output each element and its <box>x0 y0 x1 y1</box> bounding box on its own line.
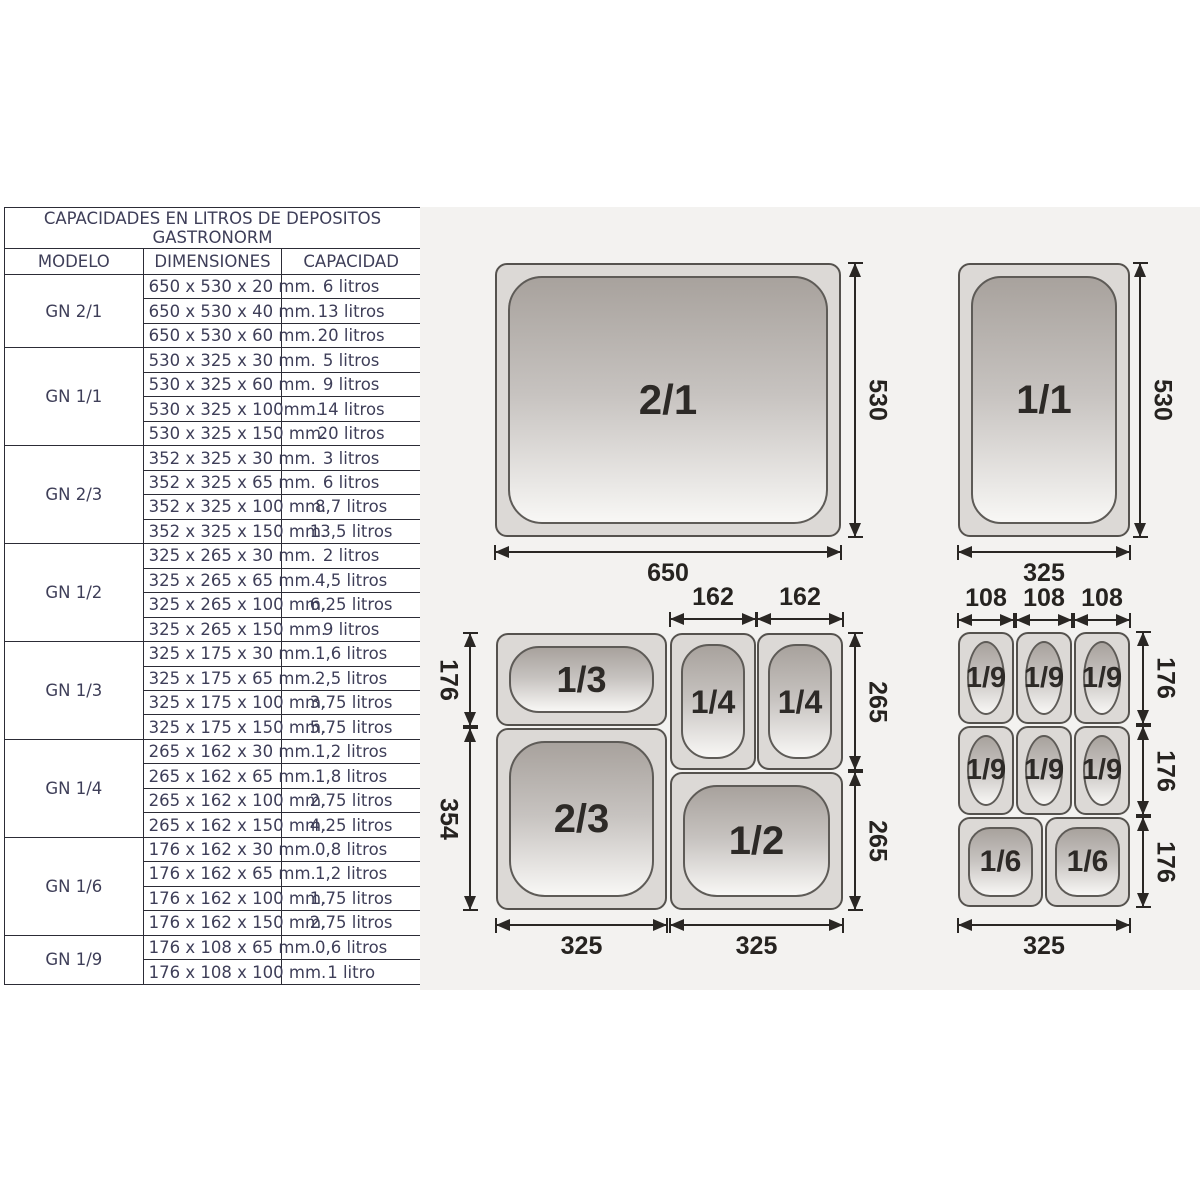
pan-label: 1/9 <box>1082 664 1122 693</box>
arrowhead-icon <box>496 919 510 931</box>
dimension-line <box>495 551 841 553</box>
pan-1-4-right: 1/4 <box>757 633 843 770</box>
pan-label: 1/6 <box>980 847 1022 877</box>
pan-1-2-well: 1/2 <box>683 785 830 897</box>
extension-tick <box>957 918 959 933</box>
pan-1-1: 1/1 <box>958 263 1130 537</box>
arrowhead-icon <box>958 546 972 558</box>
dim-label: 162 <box>692 585 734 610</box>
arrowhead-icon <box>670 919 684 931</box>
model-cell: GN 1/3 <box>5 642 144 740</box>
dim-label: 176 <box>436 659 461 701</box>
extension-tick <box>666 918 668 933</box>
extension-tick <box>756 612 758 627</box>
dim-label: 325 <box>736 934 778 959</box>
arrowhead-icon <box>849 772 861 786</box>
dimension-line <box>854 633 856 770</box>
extension-tick <box>494 545 496 560</box>
arrowhead-icon <box>757 613 771 625</box>
dimensions-cell: 352 x 325 x 65 mm. <box>143 470 282 494</box>
dimension-line <box>854 263 856 537</box>
extension-tick <box>1129 613 1131 628</box>
pan-1-9-r1c2: 1/9 <box>1016 632 1072 724</box>
pan-label: 2/1 <box>639 379 697 421</box>
model-cell: GN 2/3 <box>5 446 144 544</box>
table-row: GN 1/2325 x 265 x 30 mm.2 litros <box>5 544 421 568</box>
dimensions-cell: 650 x 530 x 40 mm. <box>143 299 282 323</box>
extension-tick <box>842 918 844 933</box>
model-cell: GN 2/1 <box>5 275 144 348</box>
extension-tick <box>1129 545 1131 560</box>
arrowhead-icon <box>1137 710 1149 724</box>
capacity-table-body: GN 2/1650 x 530 x 20 mm.6 litros650 x 53… <box>5 275 421 985</box>
dim-label: 108 <box>1023 586 1065 611</box>
dimension-line <box>469 728 471 910</box>
arrowhead-icon <box>1000 614 1014 626</box>
extension-tick <box>848 262 863 264</box>
arrowhead-icon <box>849 896 861 910</box>
extension-tick <box>840 545 842 560</box>
dimensions-cell: 325 x 265 x 65 mm. <box>143 568 282 592</box>
dimensions-cell: 325 x 265 x 100 mm. <box>143 593 282 617</box>
pan-1-1-well: 1/1 <box>971 276 1117 524</box>
pan-label: 1/4 <box>691 686 735 718</box>
arrowhead-icon <box>849 523 861 537</box>
dimensions-cell: 530 x 325 x 150 mm. <box>143 421 282 445</box>
arrowhead-icon <box>1016 614 1030 626</box>
dimensions-cell: 325 x 265 x 30 mm. <box>143 544 282 568</box>
extension-tick <box>848 771 863 773</box>
pan-label: 1/6 <box>1067 847 1109 877</box>
table-row: GN 1/9176 x 108 x 65 mm.0,6 litros <box>5 935 421 959</box>
pan-2-1-well: 2/1 <box>508 276 828 524</box>
pan-1-9-well: 1/9 <box>1025 641 1063 715</box>
pan-1-2: 1/2 <box>670 772 843 910</box>
arrowhead-icon <box>958 919 972 931</box>
dimensions-cell: 352 x 325 x 30 mm. <box>143 446 282 470</box>
pan-label: 1/3 <box>556 662 606 698</box>
extension-tick <box>1133 536 1148 538</box>
arrowhead-icon <box>495 546 509 558</box>
dimension-line <box>670 924 843 926</box>
arrowhead-icon <box>464 896 476 910</box>
pan-1-9-r2c1: 1/9 <box>958 726 1014 815</box>
arrowhead-icon <box>827 546 841 558</box>
dim-label: 108 <box>1081 586 1123 611</box>
dim-label: 354 <box>436 798 461 840</box>
table-row: GN 2/3352 x 325 x 30 mm.3 litros <box>5 446 421 470</box>
arrowhead-icon <box>742 613 756 625</box>
extension-tick <box>1073 613 1075 628</box>
dimensions-cell: 176 x 162 x 65 mm. <box>143 862 282 886</box>
arrowhead-icon <box>1058 614 1072 626</box>
dim-label: 325 <box>1023 934 1065 959</box>
arrowhead-icon <box>1137 726 1149 740</box>
pan-1-3-well: 1/3 <box>509 646 654 713</box>
dim-label: 176 <box>1153 841 1178 883</box>
column-header-dimensiones: DIMENSIONES <box>143 249 282 275</box>
dim-label: 176 <box>1153 750 1178 792</box>
arrowhead-icon <box>464 633 476 647</box>
pan-2-3: 2/3 <box>496 728 667 910</box>
arrowhead-icon <box>653 919 667 931</box>
dimensions-cell: 176 x 108 x 100 mm. <box>143 960 282 985</box>
arrowhead-icon <box>958 614 972 626</box>
extension-tick <box>495 918 497 933</box>
extension-tick <box>1015 613 1017 628</box>
dimensions-cell: 325 x 175 x 150 mm. <box>143 715 282 739</box>
extension-tick <box>957 613 959 628</box>
pan-1-4-left-well: 1/4 <box>681 644 745 759</box>
dimensions-cell: 265 x 162 x 65 mm. <box>143 764 282 788</box>
arrowhead-icon <box>849 756 861 770</box>
dim-label: 265 <box>865 820 890 862</box>
table-row: GN 2/1650 x 530 x 20 mm.6 litros <box>5 275 421 299</box>
arrowhead-icon <box>1134 263 1146 277</box>
pan-1-9-r1c3: 1/9 <box>1074 632 1130 724</box>
pan-label: 1/9 <box>1024 664 1064 693</box>
dimensions-cell: 325 x 175 x 30 mm. <box>143 642 282 666</box>
pan-1-6-left: 1/6 <box>958 817 1043 907</box>
dimensions-cell: 176 x 162 x 100 mm. <box>143 886 282 910</box>
model-cell: GN 1/4 <box>5 739 144 837</box>
extension-tick <box>848 632 863 634</box>
extension-tick <box>1133 262 1148 264</box>
dimensions-cell: 325 x 175 x 100 mm. <box>143 690 282 714</box>
dimensions-cell: 176 x 108 x 65 mm. <box>143 935 282 959</box>
dim-label: 176 <box>1153 657 1178 699</box>
dimensions-cell: 325 x 175 x 65 mm. <box>143 666 282 690</box>
dimensions-cell: 352 x 325 x 100 mm. <box>143 495 282 519</box>
arrowhead-icon <box>1137 632 1149 646</box>
pan-1-9-well: 1/9 <box>1025 735 1063 806</box>
dimension-line <box>1139 263 1141 537</box>
dim-label: 325 <box>561 934 603 959</box>
dim-label: 108 <box>965 586 1007 611</box>
extension-tick <box>1136 631 1151 633</box>
arrowhead-icon <box>670 613 684 625</box>
table-title-line2: GASTRONORM <box>5 228 420 247</box>
dim-label: 650 <box>647 561 689 586</box>
dimensions-cell: 265 x 162 x 100 mm. <box>143 788 282 812</box>
extension-tick <box>848 909 863 911</box>
arrowhead-icon <box>1116 546 1130 558</box>
extension-tick <box>669 612 671 627</box>
pan-label: 1/9 <box>1024 756 1064 785</box>
pan-1-9-r2c2: 1/9 <box>1016 726 1072 815</box>
arrowhead-icon <box>1116 614 1130 626</box>
extension-tick <box>1136 725 1151 727</box>
dimensions-cell: 650 x 530 x 20 mm. <box>143 275 282 299</box>
pan-1-6-right: 1/6 <box>1045 817 1130 907</box>
arrowhead-icon <box>1134 523 1146 537</box>
pan-label: 1/4 <box>778 686 822 718</box>
extension-tick <box>463 727 478 729</box>
extension-tick <box>957 545 959 560</box>
pan-1-9-well: 1/9 <box>967 641 1005 715</box>
pan-1-9-well: 1/9 <box>967 735 1005 806</box>
arrowhead-icon <box>464 728 476 742</box>
dimensions-cell: 650 x 530 x 60 mm. <box>143 323 282 347</box>
dimension-line <box>496 924 667 926</box>
table-title-line1: CAPACIDADES EN LITROS DE DEPOSITOS <box>5 209 420 228</box>
extension-tick <box>1136 816 1151 818</box>
pan-label: 1/2 <box>729 821 785 861</box>
extension-tick <box>1136 906 1151 908</box>
dimensions-cell: 265 x 162 x 30 mm. <box>143 739 282 763</box>
extension-tick <box>463 909 478 911</box>
dim-label: 530 <box>865 379 890 421</box>
pan-2-1: 2/1 <box>495 263 841 537</box>
table-row: GN 1/6176 x 162 x 30 mm.0,8 litros <box>5 837 421 861</box>
pan-1-6-left-well: 1/6 <box>968 827 1033 897</box>
arrowhead-icon <box>1116 919 1130 931</box>
diagram-panel: 2/1 650 530 1/1 325 530 1/3 1/4 1/4 2/3 <box>420 207 1200 990</box>
model-cell: GN 1/1 <box>5 348 144 446</box>
column-header-capacidad: CAPACIDAD <box>282 249 421 275</box>
pan-label: 1/9 <box>966 756 1006 785</box>
dim-label: 265 <box>865 681 890 723</box>
pan-2-3-well: 2/3 <box>509 741 654 897</box>
pan-label: 2/3 <box>554 799 610 839</box>
pan-1-9-r2c3: 1/9 <box>1074 726 1130 815</box>
table-title-row: CAPACIDADES EN LITROS DE DEPOSITOS GASTR… <box>5 208 421 249</box>
extension-tick <box>669 918 671 933</box>
table-row: GN 1/3325 x 175 x 30 mm.1,6 litros <box>5 642 421 666</box>
model-cell: GN 1/2 <box>5 544 144 642</box>
dimensions-cell: 176 x 162 x 150 mm. <box>143 911 282 935</box>
extension-tick <box>848 536 863 538</box>
arrowhead-icon <box>829 919 843 931</box>
dimensions-cell: 265 x 162 x 150 mm. <box>143 813 282 837</box>
pan-label: 1/9 <box>966 664 1006 693</box>
arrowhead-icon <box>1137 817 1149 831</box>
table-title: CAPACIDADES EN LITROS DE DEPOSITOS GASTR… <box>5 208 421 249</box>
extension-tick <box>1129 918 1131 933</box>
arrowhead-icon <box>1074 614 1088 626</box>
dimensions-cell: 352 x 325 x 150 mm. <box>143 519 282 543</box>
table-row: GN 1/4265 x 162 x 30 mm.1,2 litros <box>5 739 421 763</box>
dimensions-cell: 325 x 265 x 150 mm. <box>143 617 282 641</box>
dimensions-cell: 530 x 325 x 60 mm. <box>143 372 282 396</box>
pan-1-4-right-well: 1/4 <box>768 644 832 759</box>
pan-1-9-well: 1/9 <box>1083 735 1121 806</box>
arrowhead-icon <box>849 263 861 277</box>
dimension-line <box>854 772 856 910</box>
dim-label: 325 <box>1023 561 1065 586</box>
pan-1-9-r1c1: 1/9 <box>958 632 1014 724</box>
arrowhead-icon <box>1137 893 1149 907</box>
arrowhead-icon <box>464 712 476 726</box>
pan-label: 1/1 <box>1016 380 1072 420</box>
arrowhead-icon <box>1137 801 1149 815</box>
pan-1-3: 1/3 <box>496 633 667 726</box>
dimensions-cell: 530 x 325 x 100mm. <box>143 397 282 421</box>
capacity-table: CAPACIDADES EN LITROS DE DEPOSITOS GASTR… <box>4 207 421 985</box>
extension-tick <box>842 612 844 627</box>
pan-1-4-left: 1/4 <box>670 633 756 770</box>
dimension-line <box>958 551 1130 553</box>
extension-tick <box>463 632 478 634</box>
dimensions-cell: 176 x 162 x 30 mm. <box>143 837 282 861</box>
pan-1-9-well: 1/9 <box>1083 641 1121 715</box>
pan-label: 1/9 <box>1082 756 1122 785</box>
model-cell: GN 1/9 <box>5 935 144 984</box>
model-cell: GN 1/6 <box>5 837 144 935</box>
dim-label: 530 <box>1150 379 1175 421</box>
column-header-modelo: MODELO <box>5 249 144 275</box>
table-header-row: MODELO DIMENSIONES CAPACIDAD <box>5 249 421 275</box>
arrowhead-icon <box>829 613 843 625</box>
dimension-line <box>958 924 1130 926</box>
table-row: GN 1/1530 x 325 x 30 mm.5 litros <box>5 348 421 372</box>
arrowhead-icon <box>849 633 861 647</box>
dimensions-cell: 530 x 325 x 30 mm. <box>143 348 282 372</box>
pan-1-6-right-well: 1/6 <box>1055 827 1120 897</box>
dim-label: 162 <box>779 585 821 610</box>
